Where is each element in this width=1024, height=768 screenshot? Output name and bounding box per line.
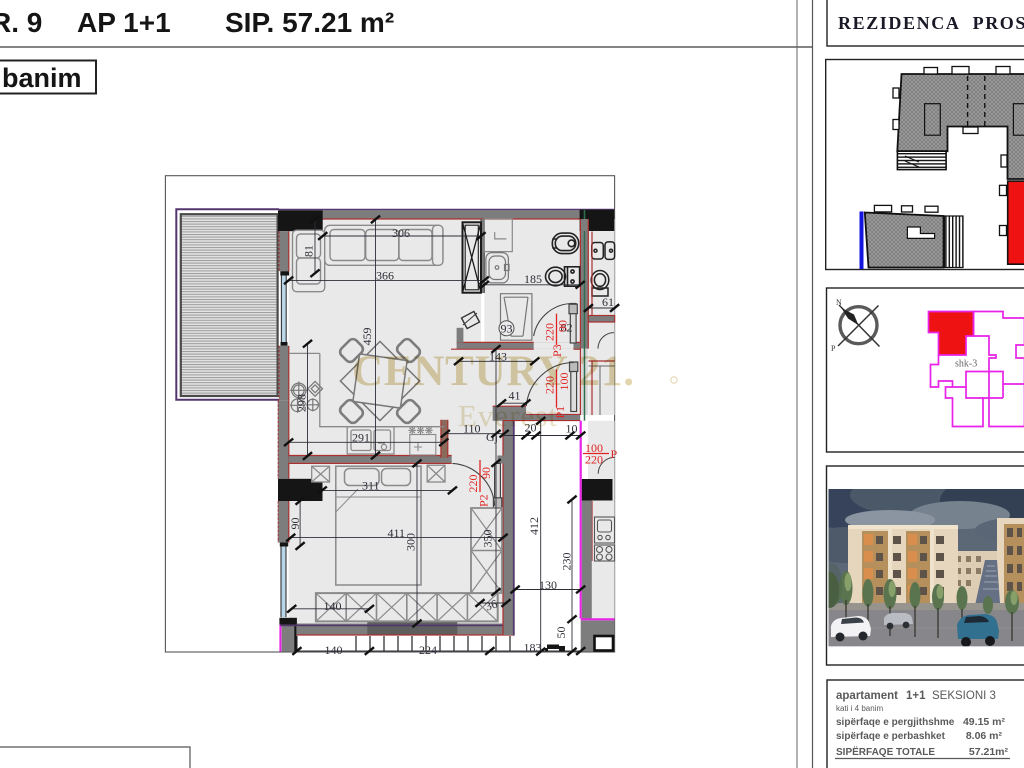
svg-text:306: 306: [392, 226, 410, 240]
svg-text:412: 412: [527, 517, 541, 535]
svg-text:183: 183: [524, 641, 542, 655]
svg-text:300: 300: [404, 533, 418, 551]
svg-text:90: 90: [556, 320, 570, 332]
svg-text:298: 298: [295, 394, 309, 412]
svg-text:459: 459: [360, 328, 374, 346]
svg-text:8.06 m²: 8.06 m²: [966, 730, 1003, 742]
svg-text:sipërfaqe e pergjithshme: sipërfaqe e pergjithshme: [836, 717, 955, 728]
svg-text:SIPËRFAQE TOTALE: SIPËRFAQE TOTALE: [836, 745, 935, 758]
svg-text:350: 350: [481, 530, 495, 548]
svg-text:kati i 4 banim: kati i 4 banim: [836, 704, 883, 713]
svg-text:366: 366: [376, 269, 394, 283]
svg-text:SIP. 57.21 m²: SIP. 57.21 m²: [225, 7, 394, 38]
svg-text:185: 185: [524, 272, 542, 286]
svg-text:140: 140: [324, 599, 342, 613]
svg-text:130: 130: [539, 578, 557, 592]
svg-text:49.15 m²: 49.15 m²: [963, 716, 1006, 728]
svg-text:1+1: 1+1: [906, 690, 926, 702]
svg-text:411: 411: [388, 526, 406, 540]
svg-text:AP 1+1: AP 1+1: [77, 7, 171, 38]
svg-text:R. 9: R. 9: [0, 7, 42, 38]
svg-text:220: 220: [585, 453, 603, 467]
svg-text:224: 224: [419, 643, 437, 657]
svg-text:CENTURY 21.: CENTURY 21.: [352, 348, 635, 395]
svg-text:SEKSIONI 3: SEKSIONI 3: [932, 690, 996, 702]
svg-text:apartament: apartament: [836, 690, 898, 702]
svg-text:220: 220: [543, 323, 557, 341]
svg-text:57.21m²: 57.21m²: [969, 746, 1009, 758]
svg-text:61: 61: [602, 295, 614, 309]
svg-text:N: N: [836, 298, 842, 307]
svg-text:sipërfaqe e perbashket: sipërfaqe e perbashket: [836, 731, 946, 742]
svg-text:93: 93: [501, 322, 513, 336]
svg-text:❋❋❋: ❋❋❋: [408, 426, 433, 437]
svg-text:10: 10: [566, 422, 578, 436]
svg-text:P: P: [611, 447, 618, 461]
svg-text:230: 230: [560, 553, 574, 571]
svg-text:banim: banim: [2, 63, 82, 93]
svg-text:P2: P2: [477, 494, 491, 507]
svg-text:shk-3: shk-3: [955, 359, 977, 370]
svg-text:90: 90: [288, 518, 302, 530]
svg-text:P: P: [831, 344, 836, 353]
svg-text:Everest: Everest: [458, 398, 558, 433]
svg-text:50: 50: [554, 627, 568, 639]
svg-text:311: 311: [362, 479, 380, 493]
svg-text:140: 140: [325, 643, 343, 657]
svg-text:291: 291: [352, 431, 370, 445]
svg-text:REZIDENCA PROSTOR: REZIDENCA PROSTOR: [838, 13, 1024, 33]
svg-text:90: 90: [479, 467, 493, 479]
svg-text:220: 220: [466, 475, 480, 493]
svg-text:81: 81: [302, 245, 316, 257]
